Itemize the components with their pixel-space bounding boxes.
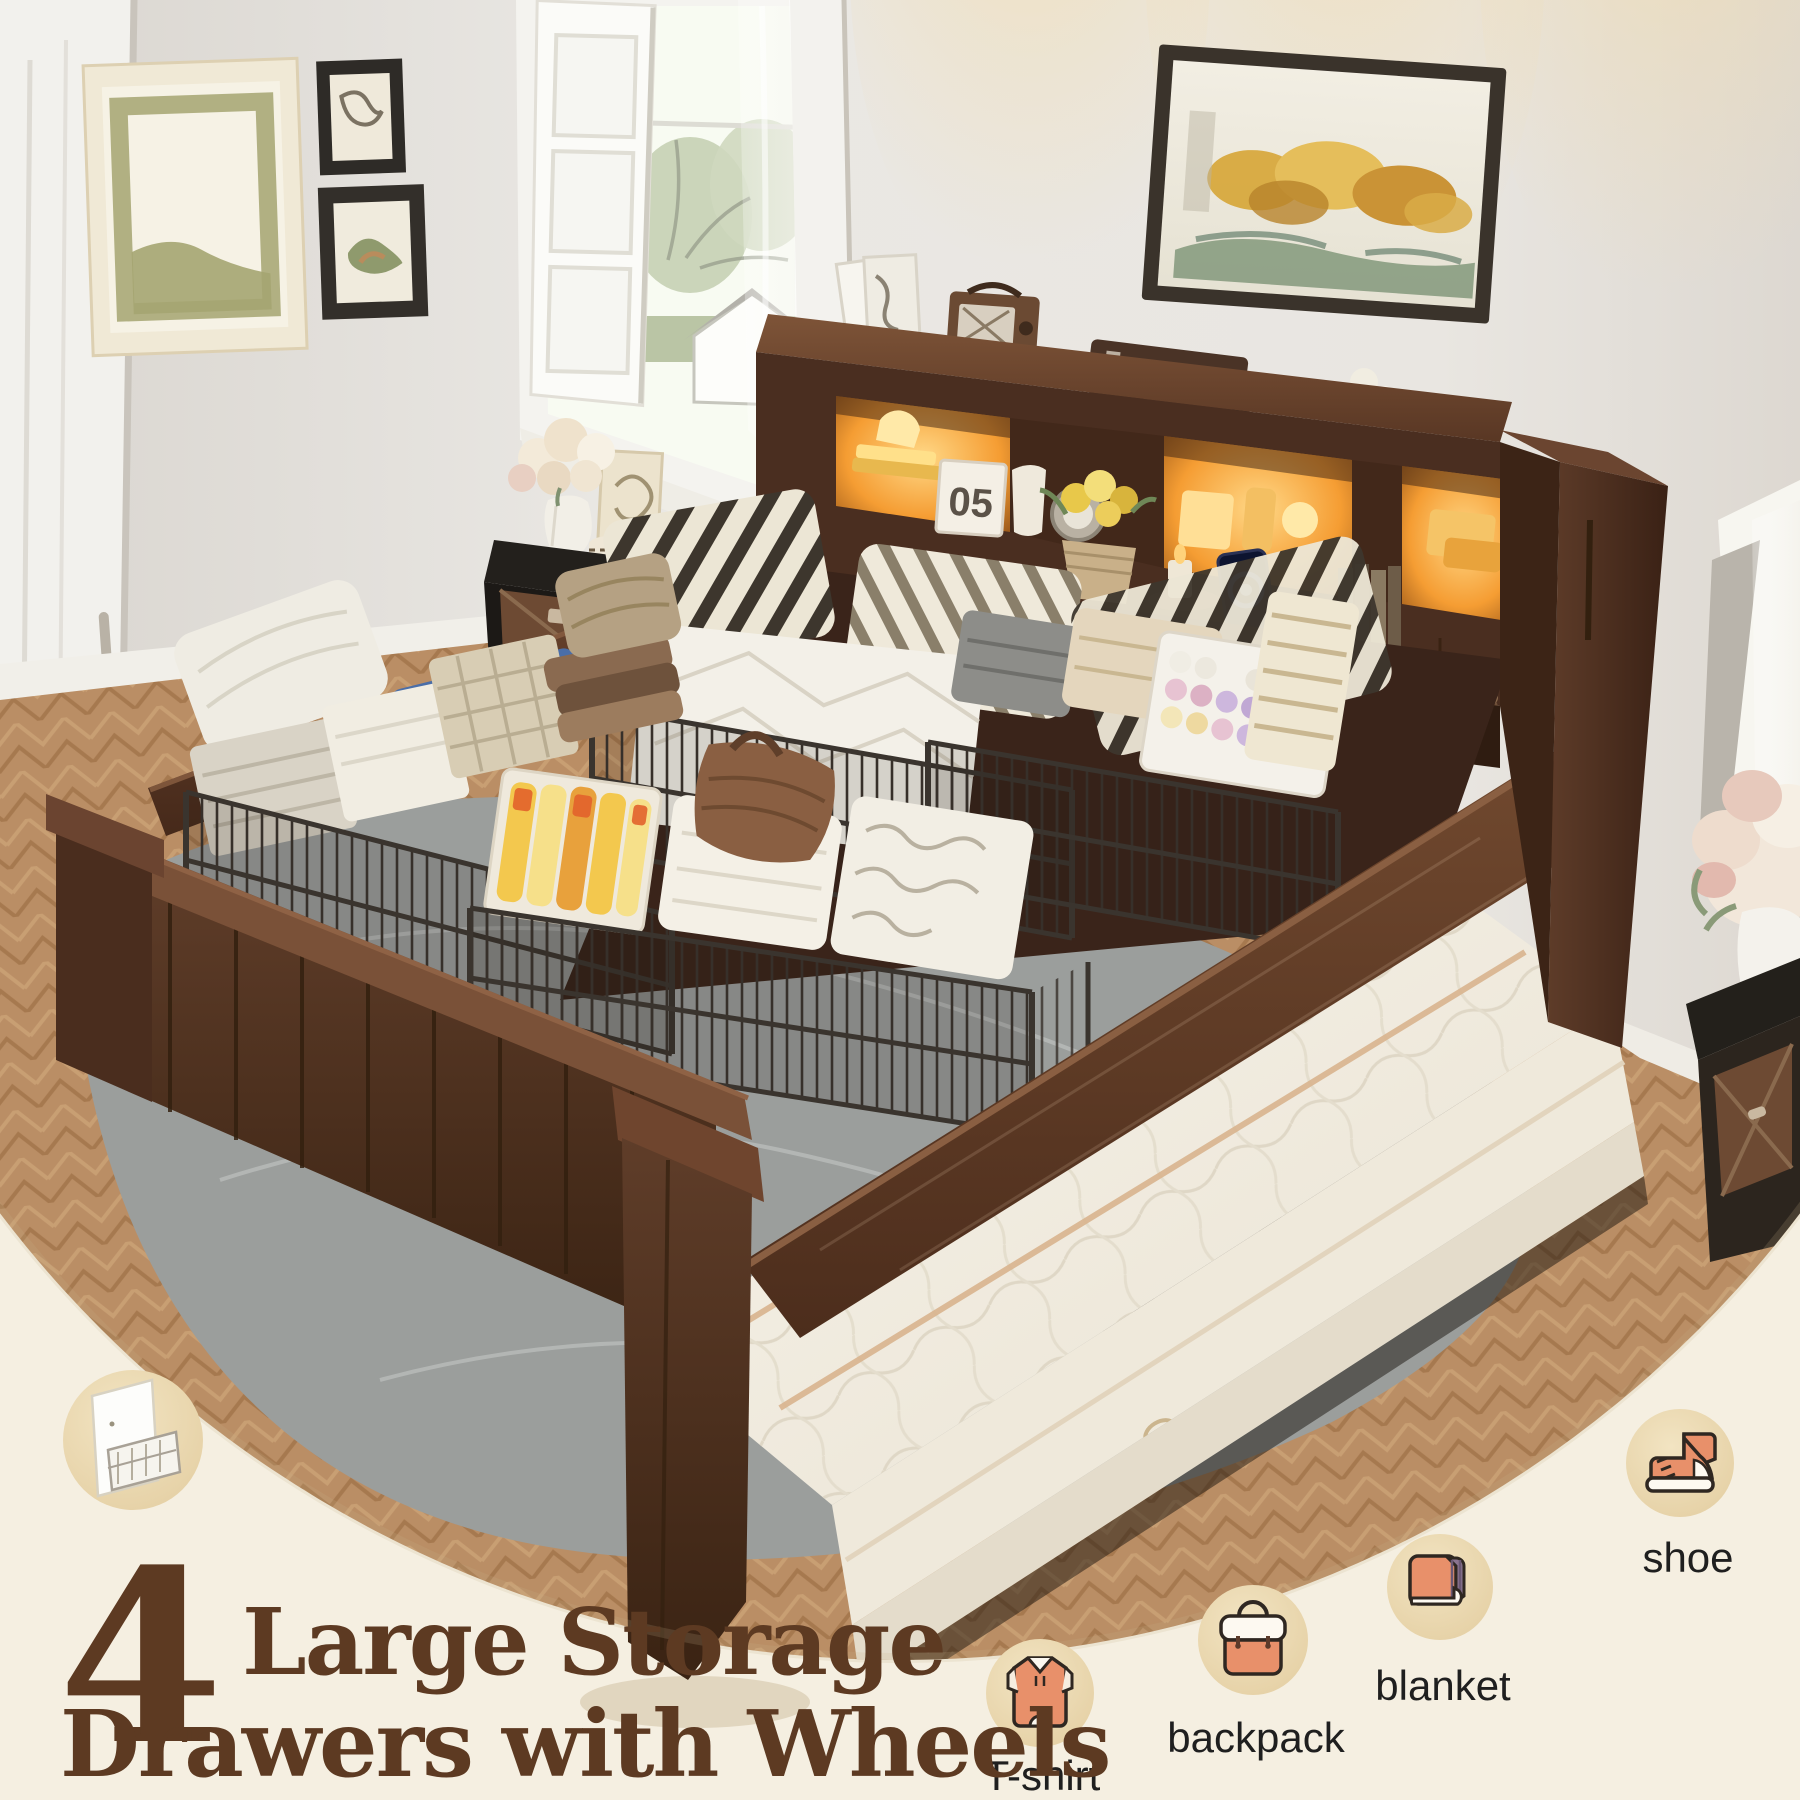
blanket-icon [1410, 1556, 1464, 1604]
calendar-number: 05 [947, 480, 994, 527]
wall-frame-small-bottom [318, 184, 429, 320]
headline-line2: Drawers with Wheels [60, 1698, 1109, 1790]
feature-badge-shoe: shoe [1626, 1409, 1734, 1581]
wall-art-painting [1142, 44, 1507, 324]
badge-label-shoe: shoe [1642, 1534, 1733, 1581]
bedroom-photo-illustration: 05 [0, 0, 1800, 1800]
headline-line1: Large Storage [242, 1596, 945, 1688]
inset-drawer-badge [63, 1370, 203, 1510]
wall-frame-large [83, 58, 307, 355]
wall-frame-small-top [316, 58, 406, 175]
block-calendar: 05 [936, 460, 1007, 536]
badge-label-backpack: backpack [1167, 1714, 1345, 1761]
badge-label-blanket: blanket [1375, 1662, 1511, 1709]
product-image: 05 [0, 0, 1800, 1800]
